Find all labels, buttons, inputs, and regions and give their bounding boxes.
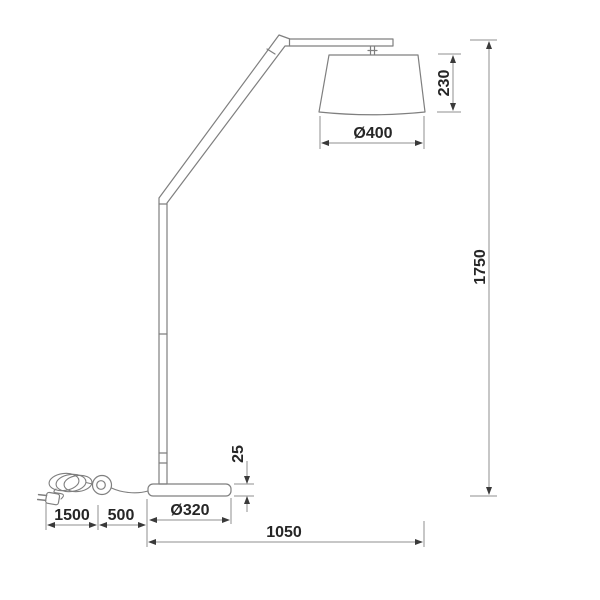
- shade-assembly: [319, 47, 425, 115]
- arrowhead-up: [486, 41, 492, 49]
- arm-joint-line: [267, 49, 275, 54]
- technical-drawing-page: 230 Ø400 1750 25 1500 500: [0, 0, 600, 600]
- arrowhead-down: [244, 476, 250, 484]
- arrowhead-up: [450, 55, 456, 63]
- arrowhead-down: [486, 487, 492, 495]
- arrowhead-left: [321, 140, 329, 146]
- dim-label-total-height: 1750: [472, 249, 489, 285]
- dim-switch-distance: 500: [99, 499, 147, 547]
- dim-label-cord-length: 1500: [54, 507, 90, 524]
- dim-cord-length: 1500: [46, 503, 98, 530]
- dim-label-base-diameter: Ø320: [170, 502, 209, 519]
- dim-label-arm-reach: 1050: [266, 524, 302, 541]
- lamp-base: [148, 484, 231, 496]
- base-plate: [148, 484, 231, 496]
- arrowhead-left: [149, 517, 157, 523]
- arrowhead-right: [415, 539, 423, 545]
- arrowhead-right: [415, 140, 423, 146]
- dim-shade-diameter: Ø400: [320, 116, 424, 149]
- dim-base-thickness: 25: [230, 445, 254, 512]
- plug-prongs: [38, 494, 47, 501]
- plug-body: [45, 492, 60, 505]
- arrowhead-right: [222, 517, 230, 523]
- shade-stem: [368, 47, 377, 56]
- arrowhead-up: [244, 496, 250, 504]
- arrowhead-right: [89, 522, 97, 528]
- dim-arm-reach: 1050: [148, 521, 424, 547]
- dim-total-height: 1750: [470, 40, 497, 496]
- arrowhead-left: [148, 539, 156, 545]
- cord-base-segment: [112, 488, 149, 493]
- dim-label-shade-diameter: Ø400: [353, 125, 392, 142]
- arrowhead-left: [99, 522, 107, 528]
- floor-lamp-dimension-drawing: 230 Ø400 1750 25 1500 500: [0, 0, 600, 600]
- lamp-shade: [319, 55, 425, 115]
- dim-shade-height: 230: [436, 54, 461, 112]
- dim-label-base-thickness: 25: [230, 445, 247, 463]
- extension-lines: [234, 484, 254, 496]
- arrowhead-down: [450, 103, 456, 111]
- arrowhead-right: [138, 522, 146, 528]
- dim-base-diameter: Ø320: [149, 498, 231, 524]
- dim-label-switch-distance: 500: [108, 507, 135, 524]
- foot-switch: [93, 476, 112, 495]
- dim-label-shade-height: 230: [436, 70, 453, 97]
- power-cord-assembly: [37, 472, 148, 505]
